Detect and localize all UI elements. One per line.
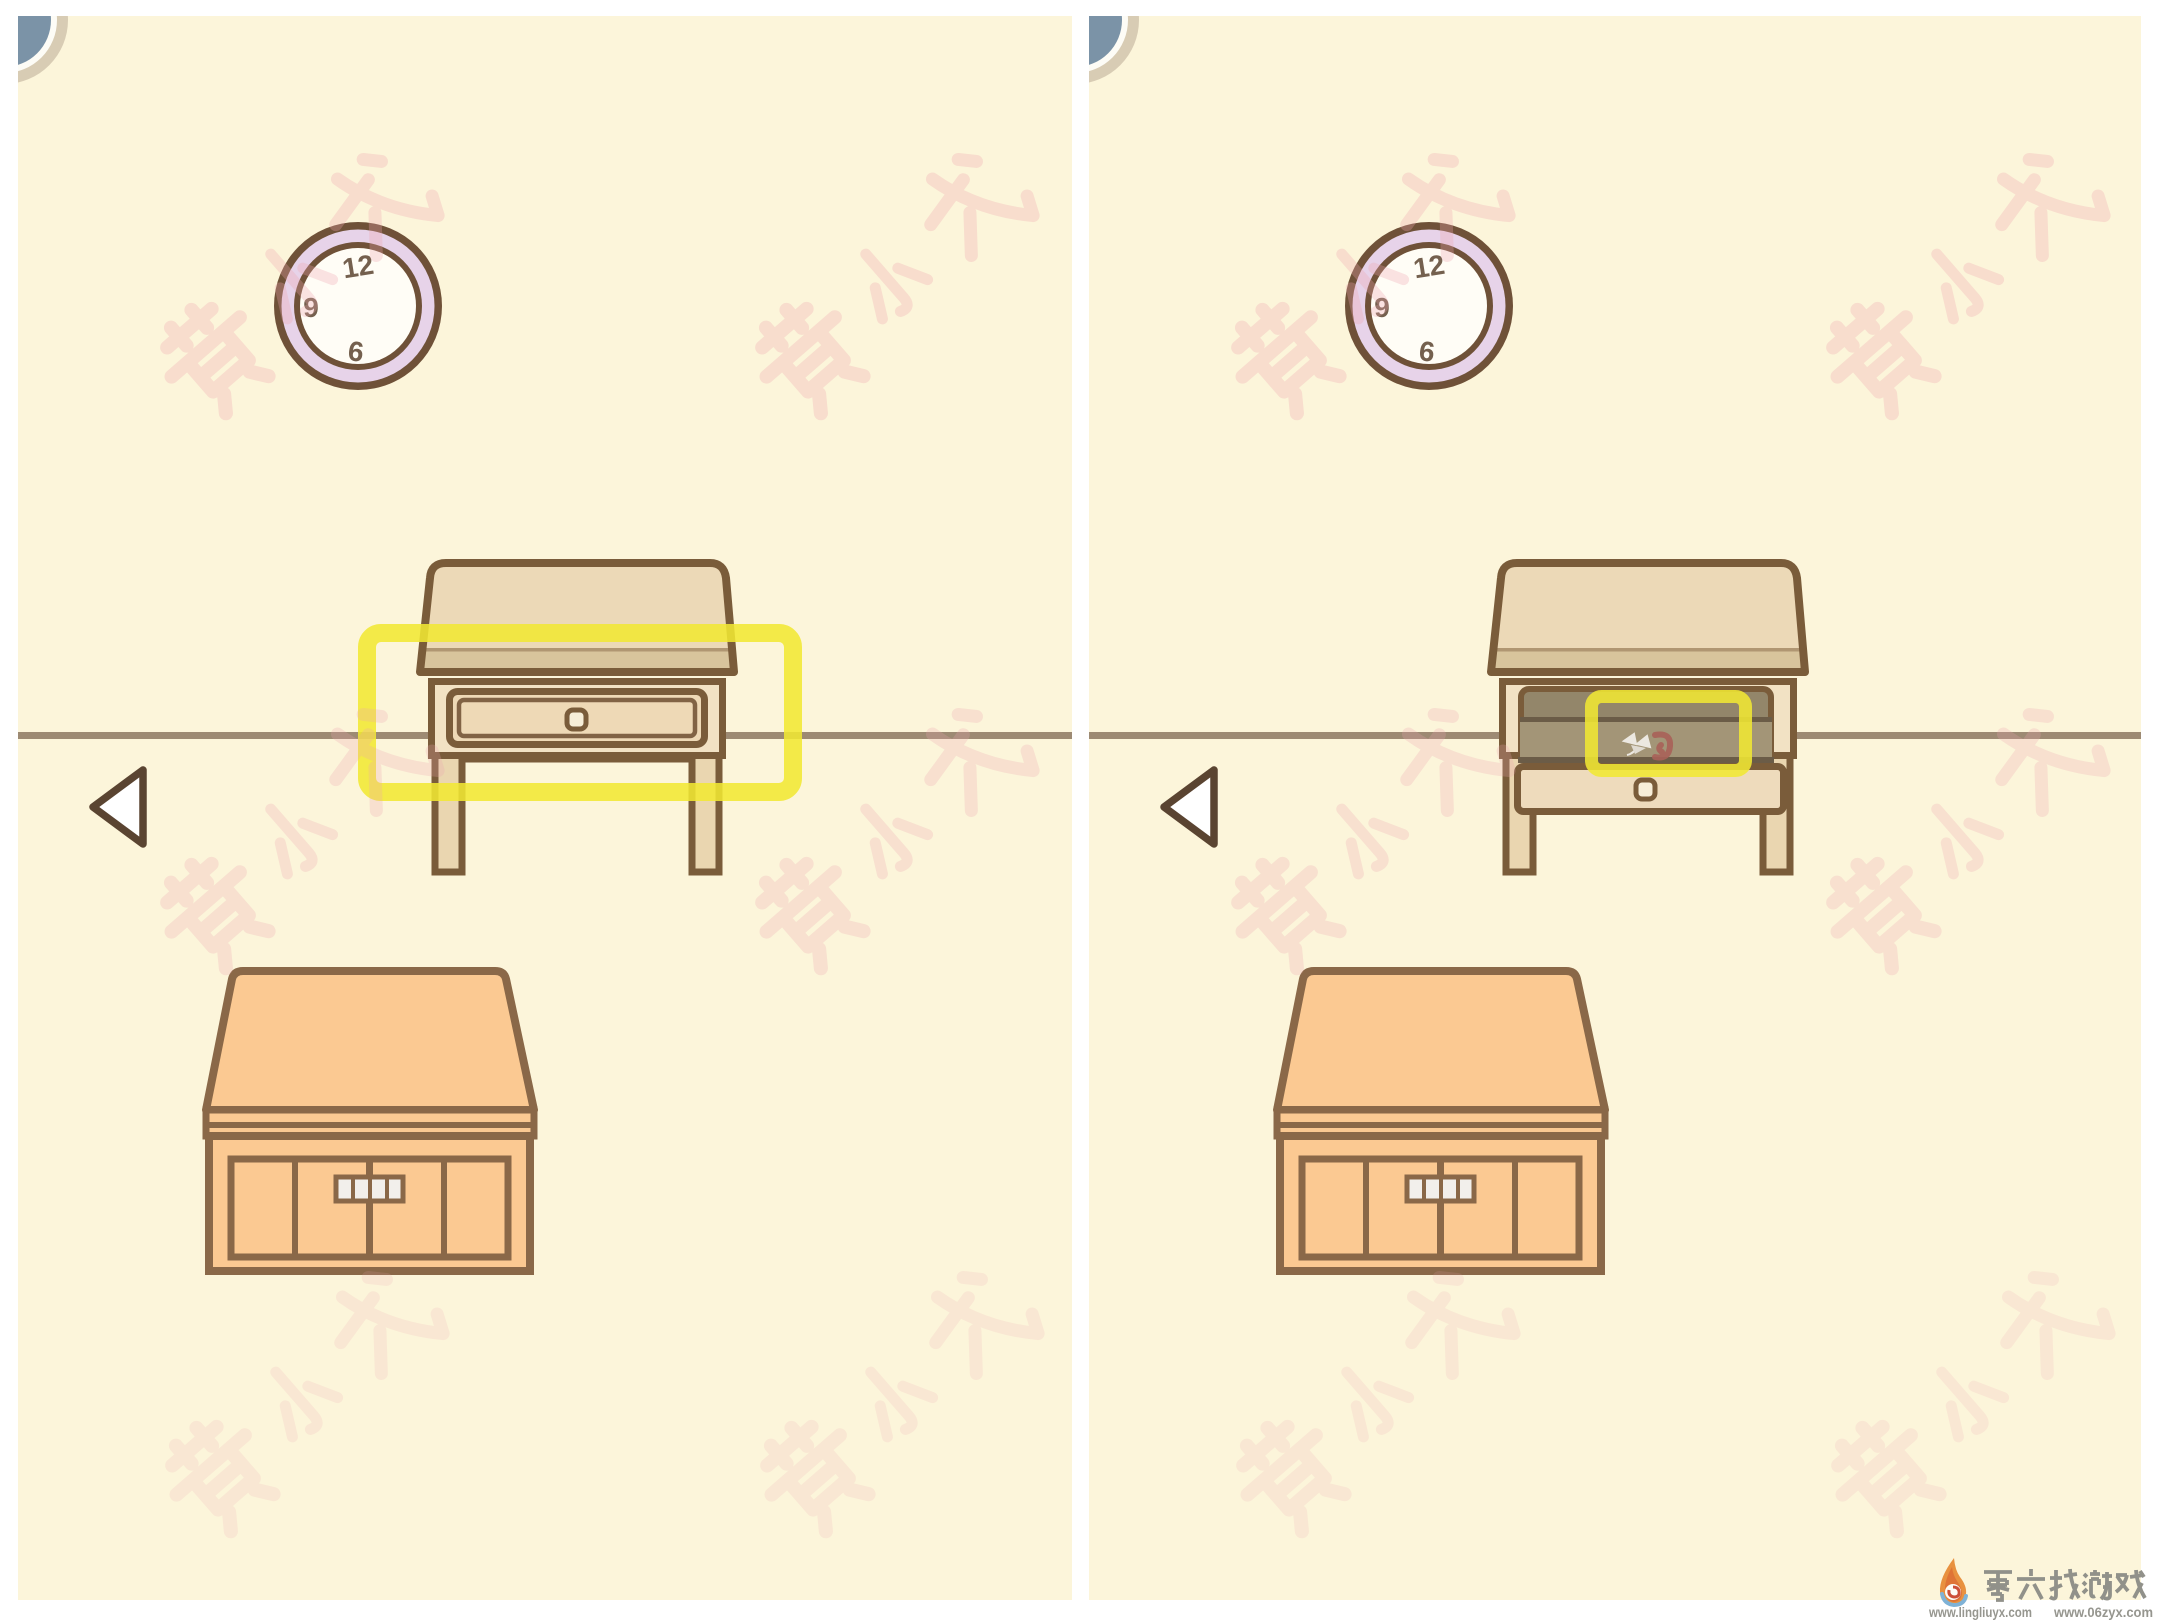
svg-text:www.06zyx.com: www.06zyx.com <box>2053 1605 2153 1620</box>
svg-text:www.lingliuyx.com: www.lingliuyx.com <box>1928 1605 2032 1620</box>
